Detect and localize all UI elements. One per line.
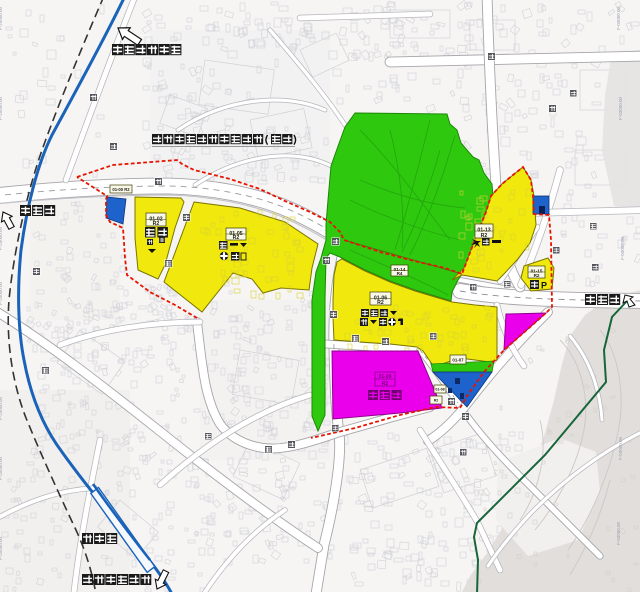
svg-text:R2: R2 bbox=[233, 235, 240, 241]
svg-text:R2: R2 bbox=[377, 300, 384, 306]
svg-text:R2: R2 bbox=[153, 221, 160, 227]
svg-text:F-25000.00: F-25000.00 bbox=[0, 96, 3, 120]
svg-text:F-25000.00: F-25000.00 bbox=[0, 281, 3, 305]
svg-text:F-03000.00: F-03000.00 bbox=[620, 236, 625, 260]
svg-text:R4: R4 bbox=[397, 271, 403, 276]
svg-text:01-00 R2: 01-00 R2 bbox=[112, 187, 130, 192]
svg-text:F-25000.00: F-25000.00 bbox=[0, 536, 3, 560]
svg-text:P: P bbox=[541, 281, 547, 291]
svg-text:F-03000.00: F-03000.00 bbox=[616, 521, 621, 545]
svg-text:R2: R2 bbox=[434, 399, 439, 403]
svg-text:F-25000.00: F-25000.00 bbox=[0, 226, 3, 250]
svg-text:F-03000.00: F-03000.00 bbox=[616, 6, 621, 30]
svg-text:F-03000.00: F-03000.00 bbox=[618, 436, 623, 460]
svg-text:R2: R2 bbox=[382, 381, 389, 387]
svg-text:F-25000.00: F-25000.00 bbox=[0, 396, 3, 420]
svg-text:01-08: 01-08 bbox=[435, 388, 444, 392]
svg-text:F-25000.00: F-25000.00 bbox=[0, 456, 3, 480]
svg-text:01-09: 01-09 bbox=[379, 374, 392, 380]
svg-text:F-25000.00: F-25000.00 bbox=[0, 6, 3, 30]
svg-text:R2: R2 bbox=[534, 273, 540, 278]
svg-text:F-03000.00: F-03000.00 bbox=[618, 96, 623, 120]
svg-text:01-07: 01-07 bbox=[452, 358, 464, 363]
